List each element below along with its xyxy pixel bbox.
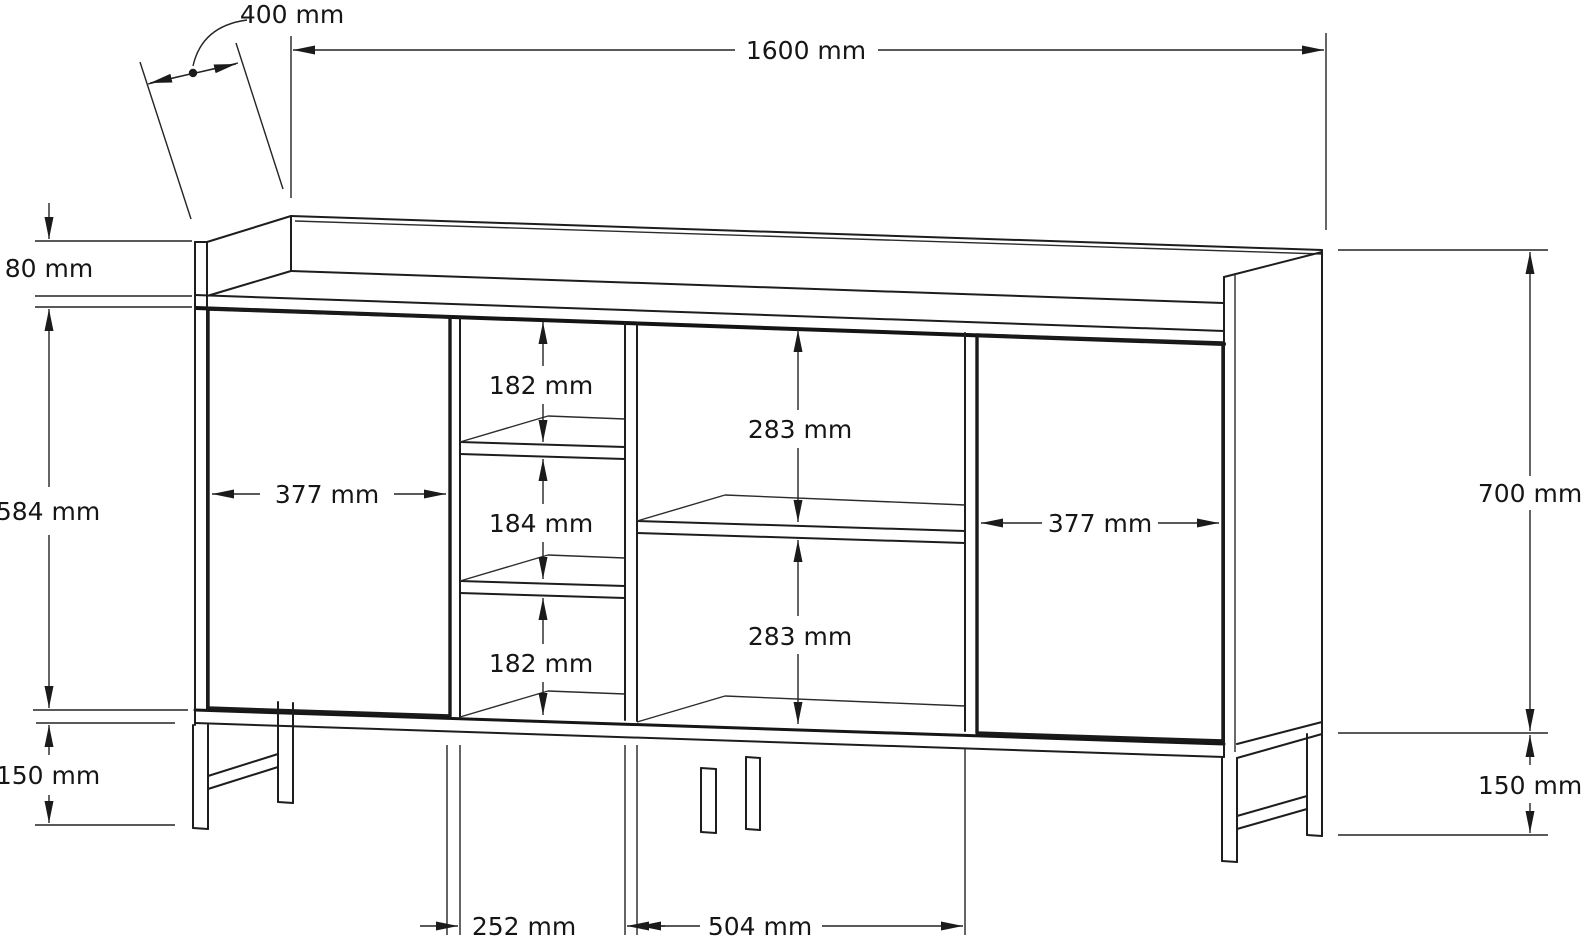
dim-1600-label: 1600 mm (746, 36, 866, 65)
dim-252-label: 252 mm (472, 912, 576, 941)
dim-184-label: 184 mm (489, 509, 593, 538)
open-compartment (637, 495, 965, 722)
dim-cubby-184: 184 mm (489, 459, 593, 579)
right-side-panel (1224, 250, 1322, 758)
dim-door-377-right: 377 mm (981, 509, 1219, 538)
dim-182-bottom-label: 182 mm (489, 649, 593, 678)
leg-frame-left (193, 702, 293, 829)
dim-377-left-label: 377 mm (275, 480, 379, 509)
legs-middle-back (701, 757, 760, 833)
dim-legs-150-left: 150 mm (0, 723, 175, 825)
dim-400-label: 400 mm (240, 0, 344, 29)
dim-door-377-left: 377 mm (212, 480, 446, 509)
dim-back-rail-80: 80 mm (5, 203, 192, 296)
back-rail (207, 216, 1322, 303)
dim-width-1600: 1600 mm (291, 33, 1326, 230)
dim-open-283-bottom: 283 mm (748, 540, 852, 724)
dim-cubby-182-bottom: 182 mm (489, 598, 593, 715)
dim-cubby-182-top: 182 mm (489, 322, 593, 442)
drawing-canvas: 400 mm 1600 mm 80 mm 584 mm 150 mm 182 m… (0, 0, 1582, 944)
dim-80-label: 80 mm (5, 254, 93, 283)
dim-150-left-label: 150 mm (0, 761, 100, 790)
dim-open-283-top: 283 mm (748, 330, 852, 522)
left-door (208, 309, 450, 716)
dim-150-right-label: 150 mm (1478, 771, 1582, 800)
dim-283-top-label: 283 mm (748, 415, 852, 444)
dim-283-bottom-label: 283 mm (748, 622, 852, 651)
dim-body-700: 700 mm (1338, 250, 1582, 733)
dim-182-top-label: 182 mm (489, 371, 593, 400)
dim-700-label: 700 mm (1478, 479, 1582, 508)
dim-carcass-584: 584 mm (0, 307, 192, 710)
dim-depth-400: 400 mm (140, 0, 344, 219)
furniture-dimension-drawing: 400 mm 1600 mm 80 mm 584 mm 150 mm 182 m… (0, 0, 1582, 944)
dim-legs-150-right: 150 mm (1338, 735, 1582, 835)
right-door (977, 335, 1223, 741)
dim-584-label: 584 mm (0, 497, 100, 526)
dim-base-252-504: 252 mm 504 mm (420, 745, 965, 941)
dim-504-label: 504 mm (708, 912, 812, 941)
dim-377-right-label: 377 mm (1048, 509, 1152, 538)
